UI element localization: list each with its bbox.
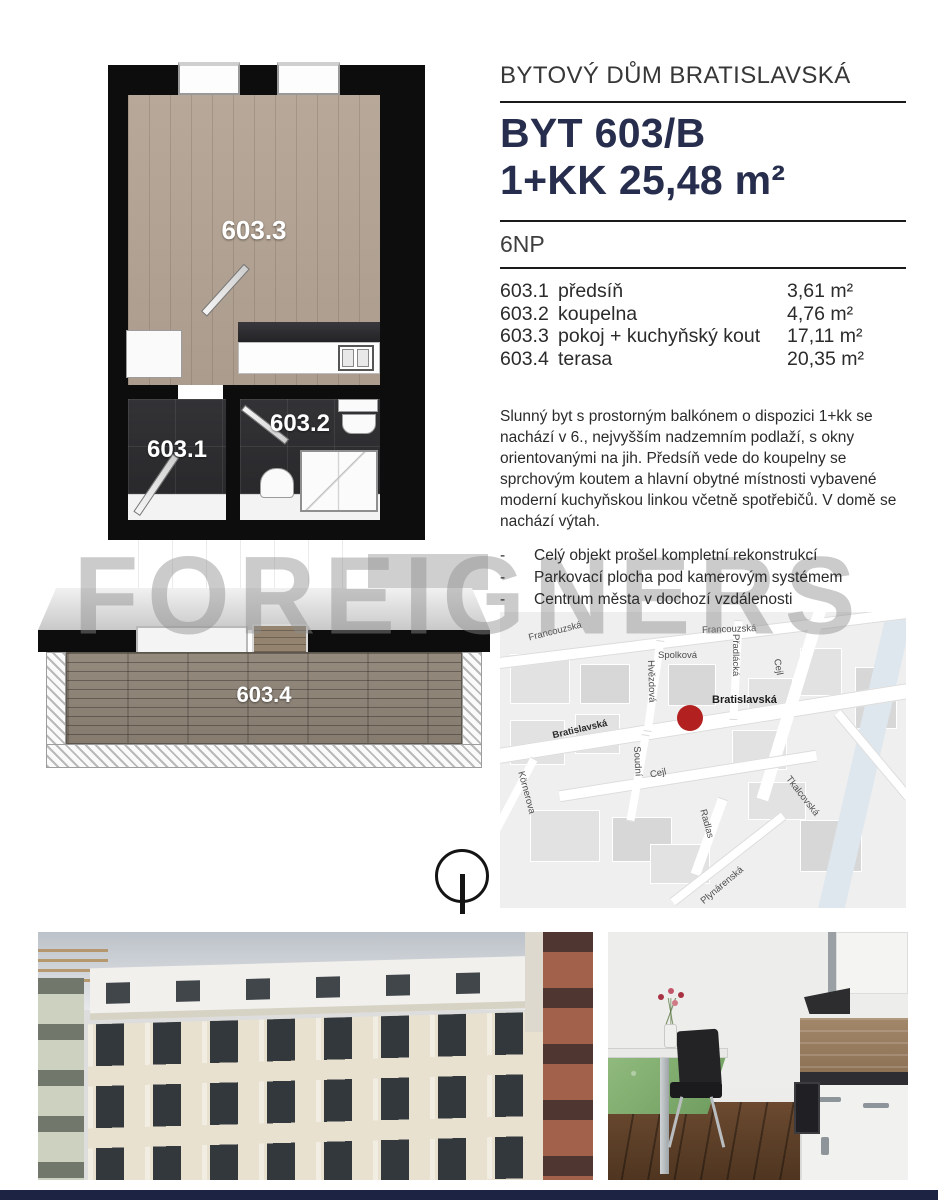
- flower: [658, 994, 664, 1000]
- room-area: 4,76 m²: [787, 303, 906, 326]
- room-name: pokoj + kuchyňský kout: [558, 325, 787, 348]
- layout-area-title: 1+KK 25,48 m²: [500, 157, 906, 204]
- building-photo: [38, 932, 593, 1180]
- door-opening: [178, 385, 223, 399]
- room-code: 603.1: [500, 280, 558, 303]
- divider: [500, 101, 906, 103]
- map-block: [530, 810, 600, 862]
- floor-plan: 603.3 603.1 603.2: [38, 60, 490, 920]
- terrace-door: [136, 626, 248, 654]
- wall-right: [380, 65, 425, 540]
- room-table: 603.1 předsíň 3,61 m² 603.2 koupelna 4,7…: [500, 280, 906, 370]
- map-road: [500, 612, 906, 670]
- brochure-page: 603.3 603.1 603.2: [0, 0, 938, 1200]
- wall-bathroom: [226, 399, 240, 520]
- upper-cabinet: [836, 932, 908, 994]
- oven: [794, 1082, 820, 1134]
- table-row: 603.3 pokoj + kuchyňský kout 17,11 m²: [500, 325, 906, 348]
- kitchen-backsplash: [238, 322, 380, 342]
- table-leg: [660, 1058, 669, 1174]
- map-block: [580, 664, 630, 704]
- terrace-tiles: [252, 624, 308, 654]
- bullet-dash: -: [500, 589, 534, 611]
- divider: [500, 220, 906, 222]
- building-facade: [88, 1012, 548, 1180]
- room-label-603-3: 603.3: [128, 215, 380, 246]
- vase: [664, 1024, 677, 1048]
- bullet-list: - Celý objekt prošel kompletní rekonstru…: [500, 545, 906, 611]
- kitchen-backsplash-wood: [800, 1018, 908, 1074]
- street-label: Cejl: [771, 658, 785, 676]
- neighbor-building-right: [543, 932, 593, 1180]
- room-code: 603.3: [500, 325, 558, 348]
- project-title: BYTOVÝ DŮM BRATISLAVSKÁ: [500, 62, 906, 90]
- bullet-text: Celý objekt prošel kompletní rekonstrukc…: [534, 545, 906, 567]
- kitchen-photo: [608, 932, 908, 1180]
- room-code: 603.2: [500, 303, 558, 326]
- room-name: koupelna: [558, 303, 787, 326]
- description-text: Slunný byt s prostorným balkónem o dispo…: [500, 406, 906, 532]
- wall-left: [108, 65, 128, 540]
- map-block: [668, 664, 716, 706]
- cabinet-handle: [821, 1137, 829, 1155]
- floor-number: 6NP: [500, 230, 906, 258]
- terrace-band-right: [307, 630, 490, 652]
- divider: [500, 267, 906, 269]
- list-item: - Celý objekt prošel kompletní rekonstru…: [500, 545, 906, 567]
- list-item: - Parkovací plocha pod kamerovým systéme…: [500, 567, 906, 589]
- chair-seat: [670, 1082, 722, 1098]
- list-item: - Centrum města v dochozí vzdálenosti: [500, 589, 906, 611]
- room-area: 17,11 m²: [787, 325, 906, 348]
- room-label-603-1: 603.1: [128, 436, 226, 464]
- location-marker: [677, 705, 703, 731]
- unit-title: BYT 603/B: [500, 110, 906, 157]
- room-label-603-2: 603.2: [240, 410, 360, 438]
- window: [178, 62, 240, 95]
- table-row: 603.4 terasa 20,35 m²: [500, 348, 906, 371]
- terrace-band-left: [38, 630, 138, 652]
- flower: [678, 992, 684, 998]
- room-label-603-4: 603.4: [66, 682, 462, 708]
- terrace-wall: [138, 540, 368, 590]
- neighbor-building-left: [38, 978, 84, 1180]
- bullet-text: Parkovací plocha pod kamerovým systémem: [534, 567, 906, 589]
- street-label: Hvězdová: [645, 660, 657, 703]
- table-row: 603.2 koupelna 4,76 m²: [500, 303, 906, 326]
- terrace-rail-bottom: [46, 744, 482, 768]
- compass-needle-icon: [460, 874, 465, 914]
- street-label: Přadlácká: [730, 634, 741, 676]
- wall-middle: [128, 385, 380, 399]
- info-panel: BYTOVÝ DŮM BRATISLAVSKÁ BYT 603/B 1+KK 2…: [500, 62, 906, 611]
- bullet-dash: -: [500, 545, 534, 567]
- marker-label: Bratislavská: [712, 694, 777, 706]
- wall-top-mid: [240, 65, 277, 95]
- flower: [672, 1000, 678, 1006]
- fridge: [126, 330, 182, 378]
- room-name: předsíň: [558, 280, 787, 303]
- terrace-wall-right: [368, 554, 488, 590]
- street-label: Spolková: [658, 650, 697, 661]
- room-name: terasa: [558, 348, 787, 371]
- wall-bottom: [108, 520, 425, 540]
- window: [277, 62, 340, 95]
- cabinet-handle: [863, 1103, 889, 1108]
- sink-basin: [357, 349, 369, 367]
- washbasin: [260, 468, 294, 498]
- flower-stems: [660, 998, 682, 1026]
- room-area: 3,61 m²: [787, 280, 906, 303]
- attic-windows: [106, 971, 526, 1004]
- flower: [668, 988, 674, 994]
- bullet-text: Centrum města v dochozí vzdálenosti: [534, 589, 906, 611]
- street-label: Soudní: [631, 746, 644, 777]
- shower: [300, 450, 378, 512]
- room-area: 20,35 m²: [787, 348, 906, 371]
- bullet-dash: -: [500, 567, 534, 589]
- chair-back: [676, 1029, 722, 1090]
- table-row: 603.1 předsíň 3,61 m²: [500, 280, 906, 303]
- sink-basin: [342, 349, 354, 367]
- location-map: Francouzská Francouzská Spolková Hvězdov…: [500, 612, 906, 908]
- footer-bar: [0, 1190, 938, 1200]
- room-code: 603.4: [500, 348, 558, 371]
- street-label: Francouzská: [527, 620, 582, 644]
